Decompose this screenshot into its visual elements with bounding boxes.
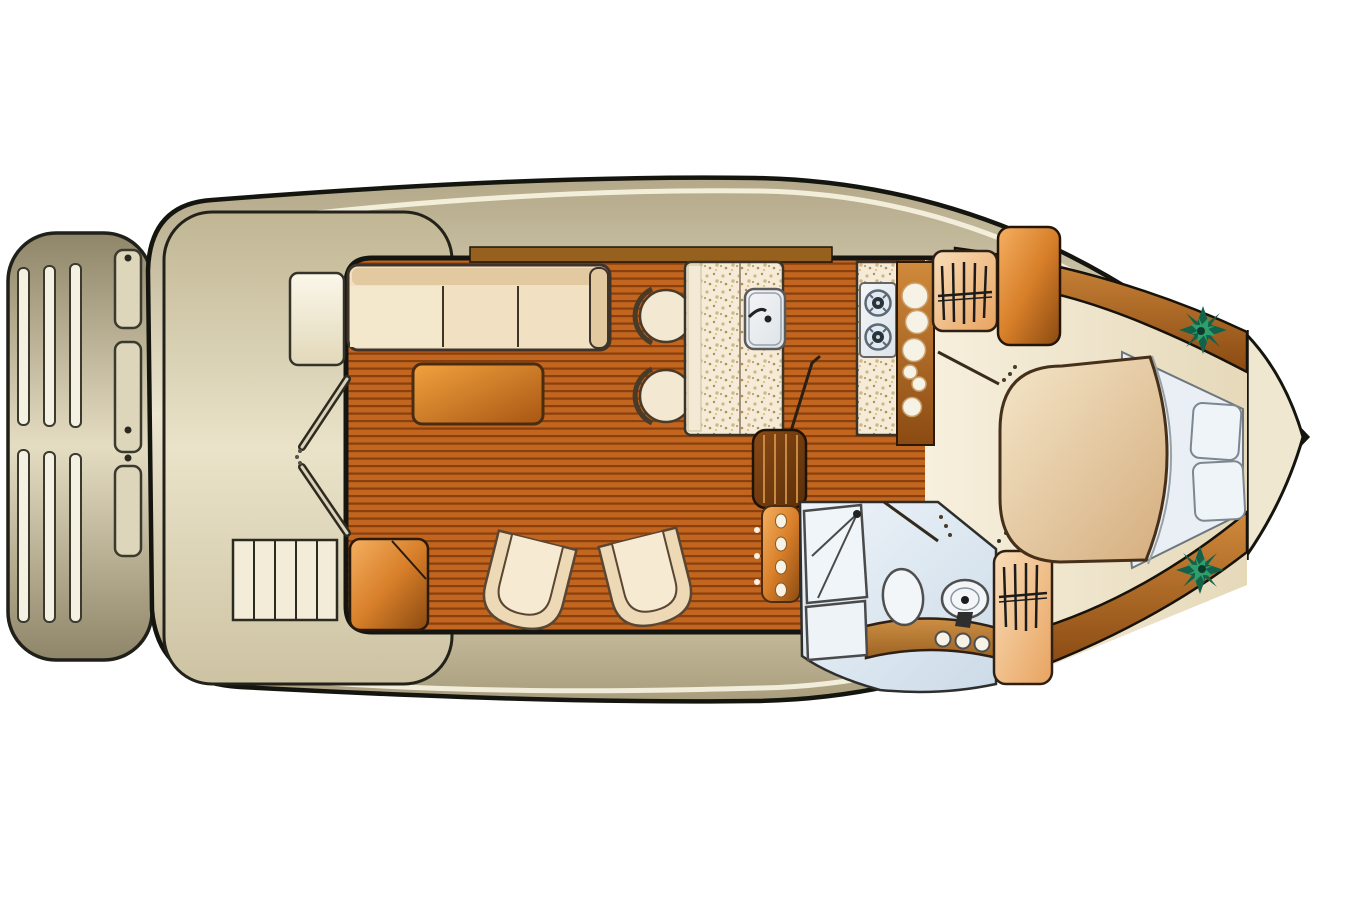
- shower-stall: [804, 505, 867, 660]
- platform-slat: [44, 452, 55, 622]
- platform-slat: [18, 268, 29, 425]
- companionway-steps: [753, 430, 806, 508]
- yacht-floor-plan-page: [0, 0, 1351, 900]
- hanging-locker-forward: [933, 251, 997, 331]
- berth-pillow: [1190, 402, 1242, 460]
- storage-circle: [903, 365, 917, 379]
- sofa-chaise-cushion: [350, 286, 442, 347]
- vanity-knob: [936, 632, 951, 647]
- wardrobe-forward: [998, 227, 1060, 345]
- dinette-stool: [635, 289, 692, 343]
- ladder-rung: [776, 583, 787, 597]
- berth-pillow: [1193, 461, 1246, 522]
- transom-boarding-ladder: [115, 250, 141, 556]
- corner-cabinet: [350, 539, 428, 630]
- galley-storage-panel: [897, 262, 934, 445]
- shower-head-icon: [853, 510, 861, 518]
- sofa: [348, 265, 610, 350]
- vanity-knob: [975, 637, 990, 652]
- storage-circle: [912, 377, 926, 391]
- yacht-floor-plan: [0, 0, 1351, 900]
- stove: [860, 283, 896, 357]
- bolt-icon: [125, 455, 132, 462]
- storage-circle: [903, 398, 922, 417]
- ladder-rung: [776, 537, 787, 551]
- platform-slat: [70, 264, 81, 427]
- bolt-icon: [125, 427, 132, 434]
- cabin-top-wall-trim: [470, 247, 832, 262]
- counter-fiddle-rail: [688, 265, 701, 431]
- aft-deck-bench: [290, 273, 344, 365]
- platform-slat: [18, 450, 29, 622]
- sofa-armrest: [590, 268, 608, 348]
- ladder-segment: [115, 250, 141, 328]
- vanity-knob: [956, 634, 971, 649]
- dinette-stool: [635, 369, 692, 423]
- ladder-rung: [776, 514, 787, 528]
- bolt-icon: [125, 255, 132, 262]
- storage-circle: [903, 339, 926, 362]
- faucet-icon: [961, 596, 969, 604]
- galley-sink: [745, 289, 785, 349]
- berth-duvet: [1000, 357, 1167, 562]
- plant-icon: [1176, 546, 1224, 594]
- stove-burner-icon: [866, 291, 891, 316]
- ladder-rung: [776, 560, 787, 574]
- ladder-segment: [115, 342, 141, 452]
- plant-icon: [1179, 306, 1227, 354]
- storage-circle: [902, 283, 928, 309]
- platform-slat: [70, 454, 81, 622]
- bow-deck: [1247, 335, 1303, 555]
- aft-deck-steps: [233, 540, 337, 620]
- platform-slat: [44, 266, 55, 426]
- drain-icon: [765, 316, 772, 323]
- ladder-segment: [115, 466, 141, 556]
- coffee-table: [413, 364, 543, 424]
- storage-circle: [906, 311, 929, 334]
- faucet-hardware: [955, 612, 973, 628]
- stove-burner-icon: [866, 325, 891, 350]
